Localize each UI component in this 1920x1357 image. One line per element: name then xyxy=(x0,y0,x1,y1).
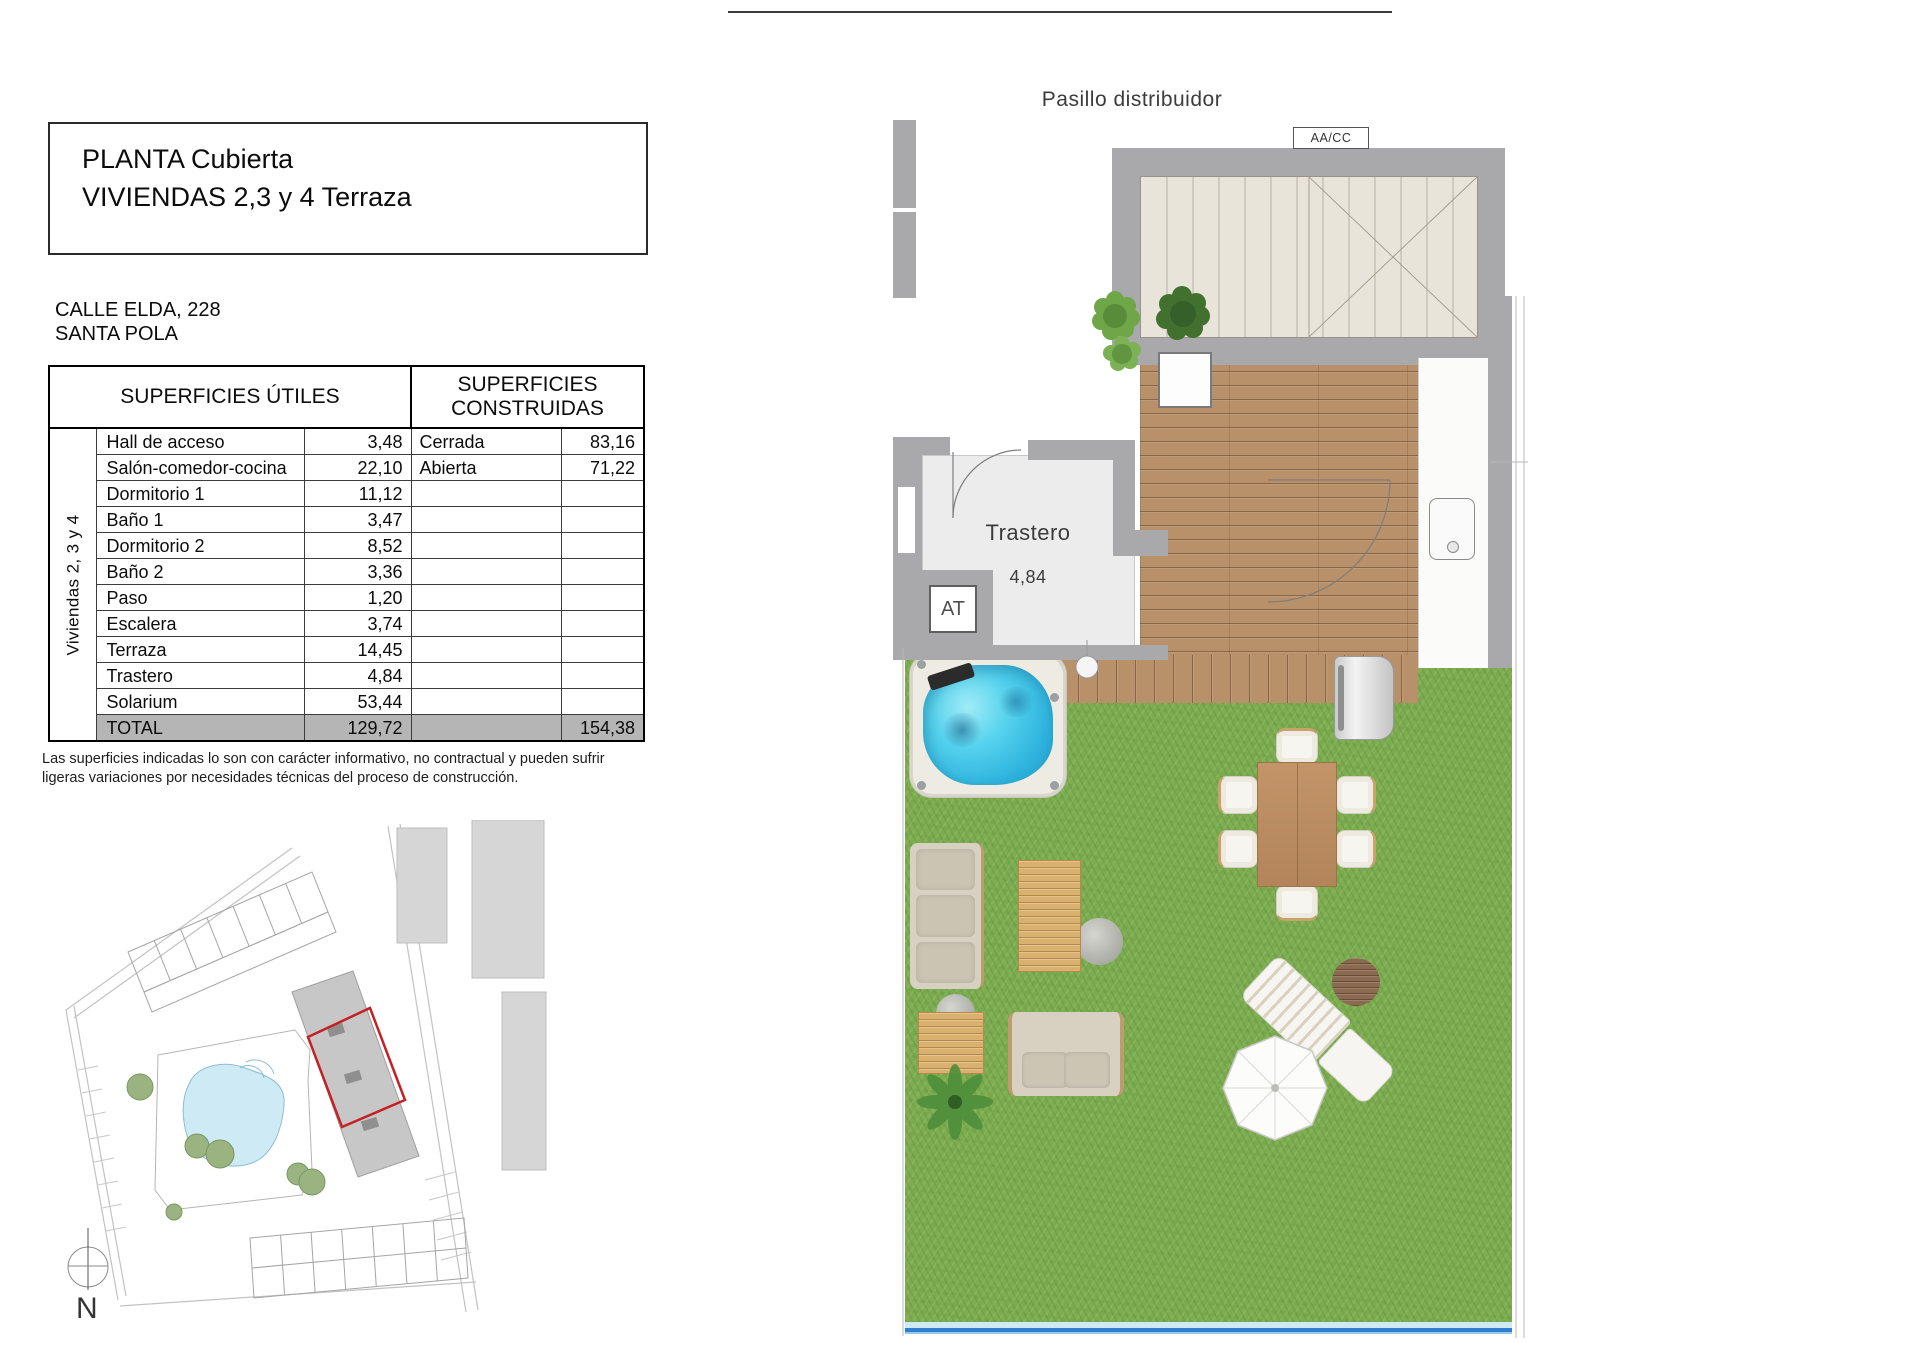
built-area xyxy=(561,689,644,715)
built-area xyxy=(561,585,644,611)
table-row: Baño 2 3,36 xyxy=(49,559,644,585)
surfaces-table-body: Viviendas 2, 3 y 4Hall de acceso 3,48 Ce… xyxy=(49,428,644,741)
surfaces-table-header: SUPERFICIES ÚTILES SUPERFICIES CONSTRUID… xyxy=(49,366,644,428)
coffee-table xyxy=(1018,860,1081,972)
site-plan: N xyxy=(40,820,630,1320)
room-area: 8,52 xyxy=(304,533,411,559)
sofa-two-seat xyxy=(1008,1012,1124,1096)
antenna-label: AT xyxy=(941,598,965,621)
room-name: Terraza xyxy=(96,637,304,663)
built-name xyxy=(411,611,561,637)
room-name: Escalera xyxy=(96,611,304,637)
water-shadow xyxy=(996,687,1036,717)
room-name: Paso xyxy=(96,585,304,611)
room-area: 1,20 xyxy=(304,585,411,611)
built-name xyxy=(411,689,561,715)
built-name xyxy=(411,481,561,507)
built-area xyxy=(561,481,644,507)
table-row: Paso 1,20 xyxy=(49,585,644,611)
built-name xyxy=(411,533,561,559)
total-useful: 129,72 xyxy=(304,715,411,742)
jet xyxy=(1050,781,1059,790)
header-useful: SUPERFICIES ÚTILES xyxy=(49,366,411,428)
table-row: Viviendas 2, 3 y 4Hall de acceso 3,48 Ce… xyxy=(49,428,644,455)
ac-unit-box: AA/CC xyxy=(1293,127,1369,149)
stone-rug xyxy=(1076,918,1123,965)
built-area xyxy=(561,637,644,663)
table-row: Solarium 53,44 xyxy=(49,689,644,715)
sofa-pillow xyxy=(1022,1052,1068,1088)
built-area: 71,22 xyxy=(561,455,644,481)
sofa-cushion xyxy=(916,849,975,890)
room-area: 3,74 xyxy=(304,611,411,637)
built-area xyxy=(561,559,644,585)
north-label: N xyxy=(76,1292,98,1320)
plan-sheet: PLANTA Cubierta VIVIENDAS 2,3 y 4 Terraz… xyxy=(0,0,1920,1357)
room-area: 3,48 xyxy=(304,428,411,455)
table-total-row: TOTAL 129,72 154,38 xyxy=(49,715,644,742)
built-area xyxy=(561,533,644,559)
row-group-label: Viviendas 2, 3 y 4 xyxy=(49,428,96,741)
room-area: 11,12 xyxy=(304,481,411,507)
jet xyxy=(917,781,926,790)
table-row: Terraza 14,45 xyxy=(49,637,644,663)
dining-chair xyxy=(1218,776,1258,814)
storage-wall-right xyxy=(1113,448,1135,532)
room-area: 14,45 xyxy=(304,637,411,663)
hot-tub xyxy=(910,653,1066,797)
plant-small xyxy=(1103,336,1141,371)
built-area xyxy=(561,611,644,637)
title-line-1: PLANTA Cubierta xyxy=(82,140,646,178)
total-label: TOTAL xyxy=(96,715,304,742)
title-line-2: VIVIENDAS 2,3 y 4 Terraza xyxy=(82,178,646,216)
storage-window xyxy=(898,487,915,553)
faucet xyxy=(1447,541,1459,553)
room-area: 22,10 xyxy=(304,455,411,481)
storage-wall-top-left xyxy=(893,437,950,455)
dining-chair xyxy=(1336,776,1376,814)
table-row: Dormitorio 1 11,12 xyxy=(49,481,644,507)
built-name xyxy=(411,559,561,585)
sofa-cushion xyxy=(916,895,975,936)
built-name xyxy=(411,585,561,611)
fern-plant xyxy=(915,1062,995,1142)
surfaces-table: SUPERFICIES ÚTILES SUPERFICIES CONSTRUID… xyxy=(48,365,645,742)
room-name: Trastero xyxy=(96,663,304,689)
room-area: 3,36 xyxy=(304,559,411,585)
built-area xyxy=(561,507,644,533)
built-area: 83,16 xyxy=(561,428,644,455)
total-built-spacer xyxy=(411,715,561,742)
plant-light xyxy=(1092,291,1140,340)
dining-chair xyxy=(1276,885,1318,921)
built-area xyxy=(561,663,644,689)
jet xyxy=(1050,693,1059,702)
sofa-three-seat xyxy=(910,843,984,989)
address-line-2: SANTA POLA xyxy=(55,322,221,346)
sofa-cushion xyxy=(916,942,975,983)
north-arrow: N xyxy=(68,1228,108,1320)
antenna-box: AT xyxy=(929,585,977,633)
top-rule xyxy=(728,11,1392,13)
dining-chair xyxy=(1336,830,1376,868)
corridor-wall-lower xyxy=(893,212,916,298)
barbecue-grill xyxy=(1334,656,1394,740)
jet xyxy=(917,660,926,669)
built-name: Cerrada xyxy=(411,428,561,455)
table-row: Baño 1 3,47 xyxy=(49,507,644,533)
storage-wall-right-return xyxy=(1113,530,1168,556)
room-name: Hall de acceso xyxy=(96,428,304,455)
room-name: Solarium xyxy=(96,689,304,715)
room-name: Dormitorio 2 xyxy=(96,533,304,559)
built-name xyxy=(411,663,561,689)
room-name: Baño 2 xyxy=(96,559,304,585)
plant-dark xyxy=(1156,286,1210,340)
water-shadow xyxy=(940,713,984,747)
built-name xyxy=(411,637,561,663)
built-name: Abierta xyxy=(411,455,561,481)
built-name xyxy=(411,507,561,533)
address-block: CALLE ELDA, 228 SANTA POLA xyxy=(55,298,221,346)
room-name: Salón-comedor-cocina xyxy=(96,455,304,481)
table-row: Escalera 3,74 xyxy=(49,611,644,637)
ac-unit-label: AA/CC xyxy=(1311,131,1352,145)
room-area: 4,84 xyxy=(304,663,411,689)
table-row: Trastero 4,84 xyxy=(49,663,644,689)
storage-room-label: Trastero xyxy=(943,520,1113,546)
right-wall xyxy=(1488,296,1512,668)
sink xyxy=(1429,498,1475,560)
address-line-1: CALLE ELDA, 228 xyxy=(55,298,221,322)
site-townhouses-bottom xyxy=(250,1218,468,1298)
table-row: Dormitorio 2 8,52 xyxy=(49,533,644,559)
disclaimer: Las superficies indicadas lo son con car… xyxy=(42,750,682,788)
disclaimer-line-2: ligeras variaciones por necesidades técn… xyxy=(42,769,682,788)
dining-chair xyxy=(1218,830,1258,868)
title-block: PLANTA Cubierta VIVIENDAS 2,3 y 4 Terraz… xyxy=(48,122,648,255)
sofa-pillow xyxy=(1064,1052,1110,1088)
room-name: Baño 1 xyxy=(96,507,304,533)
grill-vent xyxy=(1338,665,1344,731)
dining-chair xyxy=(1276,728,1318,764)
site-neighbour-buildings xyxy=(397,820,546,1170)
dining-table xyxy=(1257,762,1337,887)
corridor-label: Pasillo distribuidor xyxy=(1002,88,1262,112)
planter-box xyxy=(1158,352,1212,408)
room-area: 53,44 xyxy=(304,689,411,715)
disclaimer-line-1: Las superficies indicadas lo son con car… xyxy=(42,750,682,769)
glass-railing xyxy=(905,1322,1512,1334)
room-area: 3,47 xyxy=(304,507,411,533)
parasol xyxy=(1222,1035,1328,1141)
corridor-wall-upper xyxy=(893,120,916,208)
room-name: Dormitorio 1 xyxy=(96,481,304,507)
header-built: SUPERFICIES CONSTRUIDAS xyxy=(411,366,644,428)
table-row: Salón-comedor-cocina 22,10 Abierta 71,22 xyxy=(49,455,644,481)
total-built: 154,38 xyxy=(561,715,644,742)
